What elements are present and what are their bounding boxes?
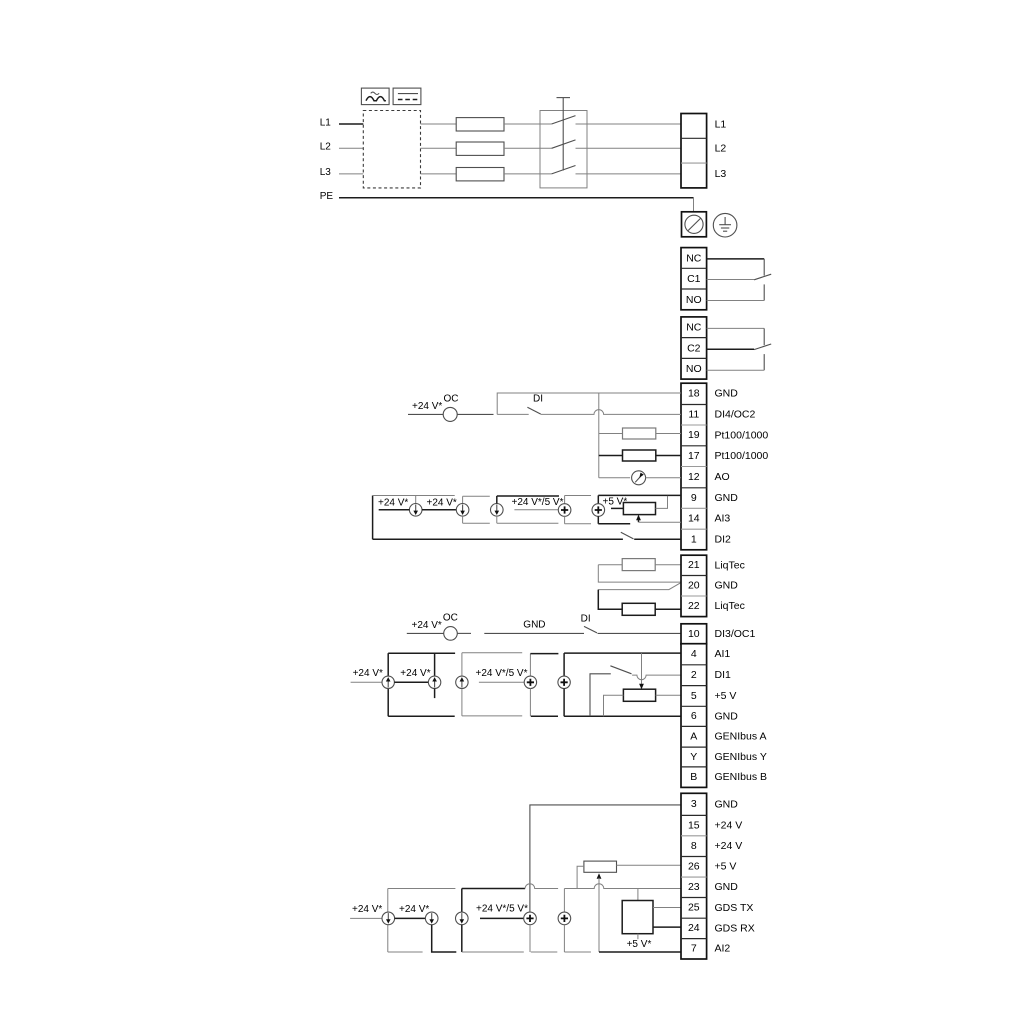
svg-text:24: 24 — [688, 922, 700, 934]
svg-text:+24 V: +24 V — [715, 840, 743, 852]
svg-text:+24 V*: +24 V* — [412, 401, 442, 412]
svg-text:11: 11 — [688, 409, 699, 421]
svg-text:GDS RX: GDS RX — [715, 922, 755, 934]
svg-text:GND: GND — [715, 881, 739, 893]
svg-text:L1: L1 — [715, 118, 727, 130]
svg-text:GENIbus A: GENIbus A — [715, 731, 767, 743]
svg-text:GND: GND — [715, 798, 739, 810]
svg-text:B: B — [690, 771, 697, 783]
svg-text:19: 19 — [688, 429, 700, 441]
svg-text:+24 V*: +24 V* — [378, 498, 408, 509]
svg-text:LiqTec: LiqTec — [715, 600, 745, 612]
svg-text:18: 18 — [688, 388, 700, 400]
svg-text:Y: Y — [690, 751, 697, 763]
svg-text:23: 23 — [688, 881, 700, 893]
svg-text:6: 6 — [691, 710, 697, 722]
svg-text:20: 20 — [688, 580, 700, 592]
svg-text:OC: OC — [443, 613, 458, 624]
svg-text:L1: L1 — [320, 117, 332, 128]
svg-text:+5 V: +5 V — [715, 690, 737, 702]
svg-text:12: 12 — [688, 471, 700, 483]
svg-text:NC: NC — [686, 252, 702, 264]
svg-text:DI: DI — [533, 394, 543, 405]
svg-text:AI3: AI3 — [715, 513, 731, 525]
svg-text:+24 V: +24 V — [715, 820, 743, 832]
svg-text:+24 V*: +24 V* — [352, 904, 382, 915]
svg-text:GND: GND — [715, 580, 739, 592]
svg-text:+24 V*/5 V*: +24 V*/5 V* — [476, 904, 528, 915]
svg-text:GDS TX: GDS TX — [715, 902, 754, 914]
svg-text:+24 V*: +24 V* — [399, 904, 429, 915]
svg-text:26: 26 — [688, 861, 700, 873]
svg-text:AI1: AI1 — [715, 648, 731, 660]
svg-text:AI2: AI2 — [715, 943, 731, 955]
svg-text:21: 21 — [688, 559, 700, 571]
svg-text:Pt100/1000: Pt100/1000 — [715, 429, 769, 441]
svg-text:DI1: DI1 — [715, 669, 732, 681]
svg-text:9: 9 — [691, 492, 697, 504]
svg-text:NO: NO — [686, 294, 702, 306]
svg-text:GENIbus B: GENIbus B — [715, 771, 768, 783]
svg-text:+24 V*/5 V*: +24 V*/5 V* — [512, 497, 564, 508]
svg-text:GND: GND — [523, 620, 545, 631]
svg-text:DI3/OC1: DI3/OC1 — [715, 628, 756, 640]
svg-text:PE: PE — [320, 191, 334, 202]
svg-text:3: 3 — [691, 798, 697, 810]
svg-text:GENIbus Y: GENIbus Y — [715, 751, 767, 763]
svg-text:5: 5 — [691, 690, 697, 702]
svg-text:7: 7 — [691, 943, 697, 955]
svg-text:8: 8 — [691, 840, 697, 852]
svg-text:L3: L3 — [715, 168, 727, 180]
svg-text:10: 10 — [688, 628, 700, 640]
svg-text:2: 2 — [691, 669, 697, 681]
svg-text:L2: L2 — [715, 143, 727, 155]
svg-text:+24 V*: +24 V* — [427, 498, 457, 509]
svg-text:NC: NC — [686, 322, 702, 334]
svg-text:17: 17 — [688, 450, 700, 462]
svg-text:+5 V: +5 V — [715, 861, 737, 873]
svg-text:+24 V*: +24 V* — [400, 668, 430, 679]
svg-text:NO: NO — [686, 363, 702, 375]
svg-text:L2: L2 — [320, 142, 332, 153]
svg-text:Pt100/1000: Pt100/1000 — [715, 450, 769, 462]
svg-text:DI4/OC2: DI4/OC2 — [715, 409, 756, 421]
svg-text:C2: C2 — [687, 342, 701, 354]
svg-text:A: A — [690, 731, 697, 743]
svg-text:22: 22 — [688, 600, 700, 612]
svg-text:4: 4 — [691, 648, 697, 660]
svg-text:C1: C1 — [687, 273, 701, 285]
svg-text:+24 V*: +24 V* — [353, 668, 383, 679]
svg-text:GND: GND — [715, 710, 739, 722]
svg-text:+24 V*/5 V*: +24 V*/5 V* — [476, 668, 528, 679]
svg-text:OC: OC — [444, 394, 459, 405]
svg-text:DI2: DI2 — [715, 533, 732, 545]
svg-text:15: 15 — [688, 819, 700, 831]
svg-text:14: 14 — [688, 513, 700, 525]
svg-text:DI: DI — [581, 614, 591, 625]
svg-text:L3: L3 — [320, 167, 332, 178]
svg-text:AO: AO — [715, 471, 730, 483]
svg-text:1: 1 — [691, 533, 697, 545]
svg-text:GND: GND — [715, 492, 739, 504]
svg-text:25: 25 — [688, 902, 700, 914]
svg-text:+5 V*: +5 V* — [627, 939, 652, 950]
svg-text:LiqTec: LiqTec — [715, 559, 745, 571]
svg-text:+24 V*: +24 V* — [412, 620, 442, 631]
svg-text:GND: GND — [715, 388, 739, 400]
